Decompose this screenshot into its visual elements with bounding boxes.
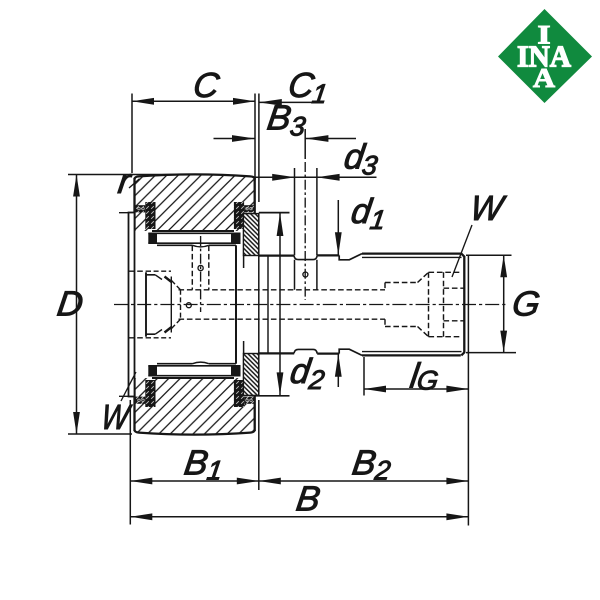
svg-text:A: A xyxy=(533,63,556,93)
svg-text:3: 3 xyxy=(360,150,379,181)
svg-text:C: C xyxy=(191,66,222,105)
svg-text:1: 1 xyxy=(310,78,329,109)
svg-text:1: 1 xyxy=(368,204,387,235)
svg-text:G: G xyxy=(510,285,543,324)
svg-text:B: B xyxy=(294,480,323,519)
svg-text:G: G xyxy=(415,365,440,396)
svg-text:D: D xyxy=(55,285,86,324)
svg-text:W: W xyxy=(99,398,134,437)
svg-text:r: r xyxy=(116,162,134,201)
svg-text:W: W xyxy=(468,189,508,228)
